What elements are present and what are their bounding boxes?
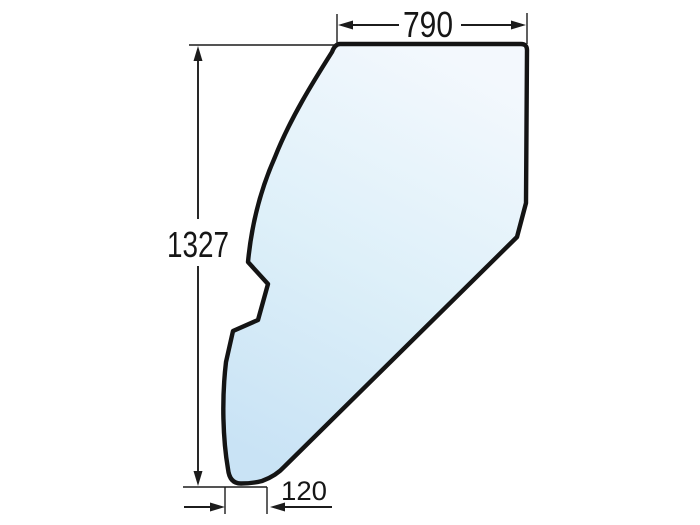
dim-label-bottom-width: 120 [281, 476, 327, 506]
glass-dimension-diagram: 790 1327 120 [0, 0, 700, 525]
diagram-canvas: 790 1327 120 [0, 0, 700, 525]
dim-label-left-height: 1327 [167, 224, 229, 265]
dim-label-top-width: 790 [403, 4, 453, 45]
